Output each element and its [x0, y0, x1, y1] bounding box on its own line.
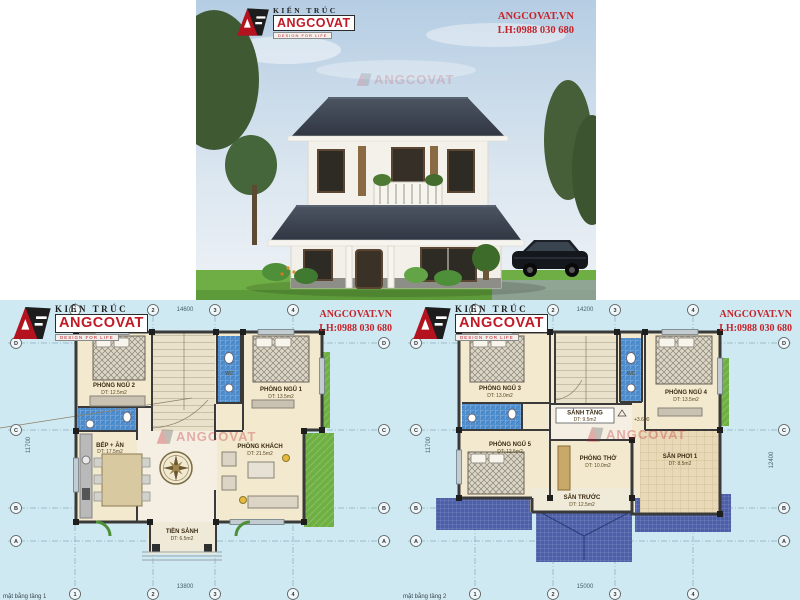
- svg-text:DT: 8.5m2: DT: 8.5m2: [669, 461, 692, 467]
- svg-text:3: 3: [613, 592, 616, 598]
- svg-text:D: D: [782, 341, 786, 347]
- svg-text:C: C: [14, 428, 18, 434]
- room-label: PHÒNG NGỦ 4: [665, 388, 708, 396]
- logo-tagline: DESIGN FOR LIFE: [273, 32, 332, 39]
- svg-text:2: 2: [551, 592, 554, 598]
- dining-table: [102, 454, 142, 506]
- svg-text:3: 3: [613, 308, 616, 314]
- svg-text:1: 1: [473, 592, 476, 598]
- svg-text:DT: 12.5m2: DT: 12.5m2: [101, 390, 127, 396]
- wc: [217, 336, 241, 403]
- svg-text:DT: 10.0m2: DT: 10.0m2: [585, 463, 611, 469]
- svg-text:DT: 9.5m2: DT: 9.5m2: [574, 417, 597, 423]
- floor-plan-2-drawing: PHÒNG NGỦ 3 DT: 13.0m2 PHÒNG NGỦ 4 DT: 1…: [400, 300, 800, 600]
- caption: mặt bằng tầng 2: [403, 593, 447, 600]
- room-label: PHÒNG NGỦ 5: [489, 440, 532, 448]
- angcovat-logo: KIẾN TRÚC ANGCOVAT DESIGN FOR LIFE: [12, 304, 148, 342]
- phone: LH:0988 030 680: [498, 24, 574, 38]
- room-label: SẢNH TẦNG: [567, 410, 603, 417]
- svg-text:A: A: [14, 539, 18, 545]
- dim-top: 14200: [577, 307, 594, 313]
- contact-info: ANGCOVAT.VN LH:0988 030 680: [498, 10, 574, 38]
- angcovat-logo-icon: [12, 304, 52, 342]
- balcony-floor: [640, 430, 720, 514]
- room-label: PHÒNG THỜ: [580, 454, 618, 462]
- svg-text:2: 2: [151, 308, 154, 314]
- floor-plan-2: PHÒNG NGỦ 3 DT: 13.0m2 PHÒNG NGỦ 4 DT: 1…: [400, 300, 800, 600]
- dresser: [90, 396, 145, 406]
- room-label: TIỀN SẢNH: [166, 528, 198, 535]
- dim-bottom: 15000: [577, 584, 594, 590]
- room-label: WC: [225, 371, 234, 377]
- svg-text:DT: 13.5m2: DT: 13.5m2: [673, 397, 699, 403]
- svg-text:DT: 17.5m2: DT: 17.5m2: [97, 449, 123, 455]
- svg-text:B: B: [782, 506, 786, 512]
- svg-text:C: C: [782, 428, 786, 434]
- room-label: WC: [627, 371, 636, 377]
- website: ANGCOVAT.VN: [498, 10, 574, 24]
- dim-left: 11700: [26, 436, 32, 453]
- svg-text:B: B: [414, 506, 418, 512]
- altar-cabinet: [558, 446, 570, 490]
- room-label: PHÒNG KHÁCH: [237, 442, 282, 450]
- floor-plan-1: PHÒNG NGỦ 2 DT: 12.5m2 PHÒNG NGỦ 1 DT: 1…: [0, 300, 401, 600]
- svg-text:3: 3: [213, 308, 216, 314]
- side-lawn: [304, 433, 334, 527]
- house-illustration: [196, 0, 596, 300]
- room-label: PHÒNG NGỦ 1: [260, 385, 303, 393]
- caption: mặt bằng tầng 1: [3, 593, 47, 600]
- svg-text:A: A: [382, 539, 386, 545]
- room-label: SÂN TRƯỚC: [564, 493, 601, 501]
- svg-text:3: 3: [213, 592, 216, 598]
- logo-kien-truc: KIẾN TRÚC: [273, 6, 338, 15]
- room-label: BẾP + ĂN: [96, 442, 124, 449]
- svg-text:C: C: [414, 428, 418, 434]
- svg-text:2: 2: [551, 308, 554, 314]
- coffee-table: [248, 462, 274, 478]
- sofa: [248, 496, 298, 508]
- page: KIẾN TRÚC ANGCOVAT DESIGN FOR LIFE ANGCO…: [0, 0, 800, 600]
- dim-left: 11700: [426, 436, 432, 453]
- level-mark: +3.600: [634, 417, 650, 423]
- contact-info: ANGCOVAT.VN LH:0988 030 680: [319, 308, 392, 335]
- contact-info: ANGCOVAT.VN LH:0988 030 680: [719, 308, 792, 335]
- svg-text:2: 2: [151, 592, 154, 598]
- floor-plans: PHÒNG NGỦ 2 DT: 12.5m2 PHÒNG NGỦ 1 DT: 1…: [0, 300, 800, 600]
- svg-text:A: A: [782, 539, 786, 545]
- angcovat-logo-icon: [412, 304, 452, 342]
- svg-text:DT: 6.5m2: DT: 6.5m2: [171, 536, 194, 542]
- angcovat-logo: KIẾN TRÚC ANGCOVAT DESIGN FOR LIFE: [236, 6, 355, 39]
- svg-text:B: B: [382, 506, 386, 512]
- svg-text:1: 1: [73, 592, 76, 598]
- svg-text:B: B: [14, 506, 18, 512]
- room-label: SÂN PHƠI 1: [663, 453, 698, 460]
- dim-top: 14600: [177, 307, 194, 313]
- dim-bottom: 13800: [177, 584, 194, 590]
- logo-brand: ANGCOVAT: [273, 15, 355, 31]
- angcovat-logo: KIẾN TRÚC ANGCOVAT DESIGN FOR LIFE: [412, 304, 548, 342]
- lower-roof: [268, 206, 524, 244]
- angcovat-logo-icon: [236, 6, 270, 38]
- svg-text:C: C: [382, 428, 386, 434]
- room-label: PHÒNG NGỦ 3: [479, 384, 522, 392]
- svg-text:DT: 21.5m2: DT: 21.5m2: [247, 451, 273, 457]
- svg-text:DT: 12.5m2: DT: 12.5m2: [569, 502, 595, 508]
- floor-plan-1-drawing: PHÒNG NGỦ 2 DT: 12.5m2 PHÒNG NGỦ 1 DT: 1…: [0, 300, 400, 600]
- compass-rose: [160, 452, 192, 484]
- house-render-photo: KIẾN TRÚC ANGCOVAT DESIGN FOR LIFE ANGCO…: [196, 0, 596, 300]
- kitchen-counter: [80, 434, 92, 518]
- svg-text:DT: 13.5m2: DT: 13.5m2: [268, 394, 294, 400]
- svg-text:A: A: [414, 539, 418, 545]
- svg-text:DT: 12.5m2: DT: 12.5m2: [497, 449, 523, 455]
- room-label: PHÒNG NGỦ 2: [93, 381, 136, 389]
- dim-right: 12400: [769, 451, 775, 468]
- svg-text:D: D: [382, 341, 386, 347]
- svg-text:DT: 13.0m2: DT: 13.0m2: [487, 393, 513, 399]
